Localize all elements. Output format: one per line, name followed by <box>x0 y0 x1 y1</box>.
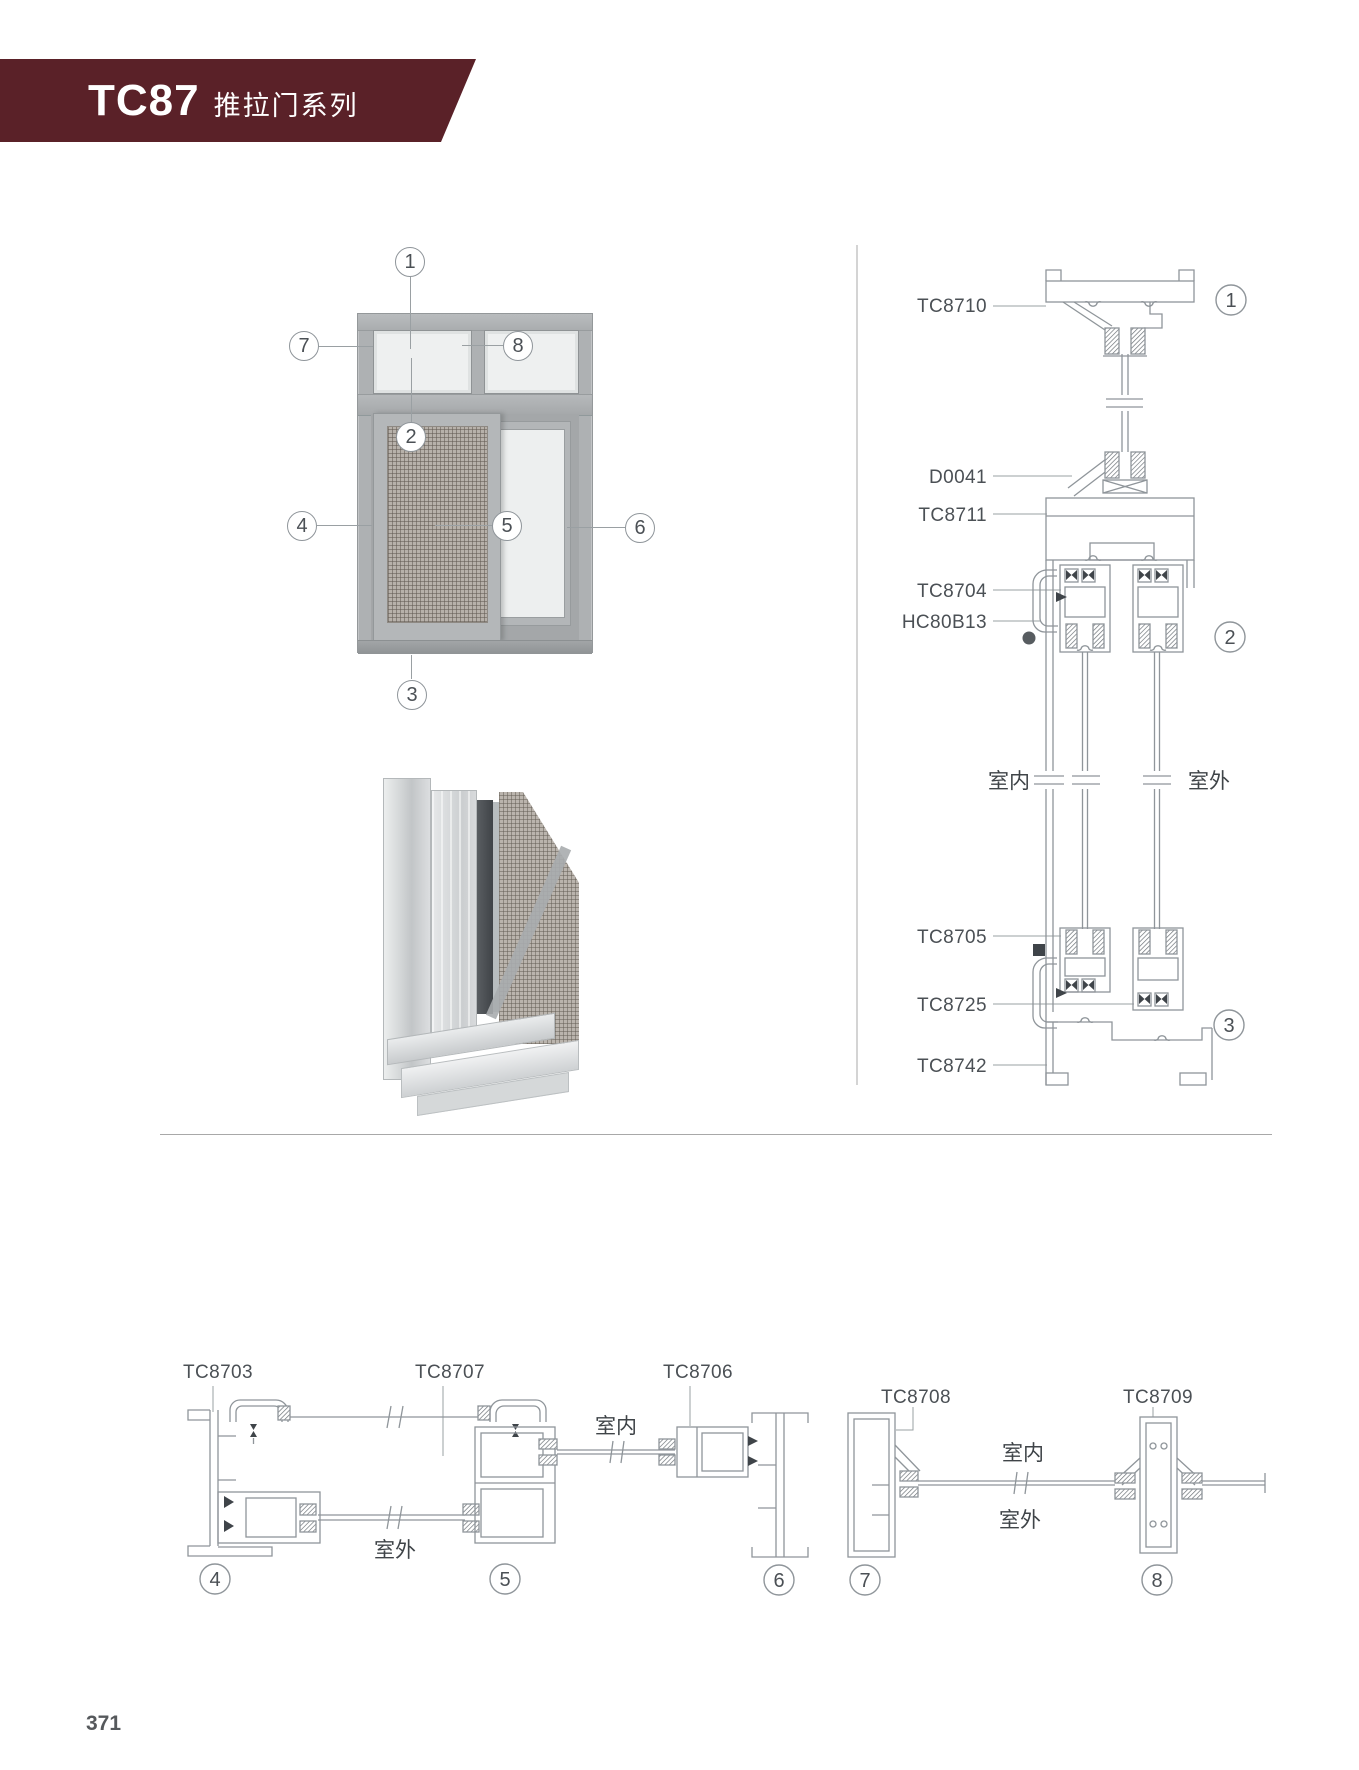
page-number: 371 <box>86 1712 121 1736</box>
section-callout-4: 4 <box>209 1569 220 1591</box>
top-sash-left <box>1060 565 1110 652</box>
section-callout-8: 8 <box>1151 1570 1162 1592</box>
vertical-section-drawing: 室内 室外 <box>850 240 1280 1100</box>
leader-callout-7 <box>319 346 373 347</box>
screen-top-guide <box>230 1400 546 1444</box>
render-glazing-channel <box>477 800 493 1014</box>
transom-glass-left <box>373 330 472 394</box>
leader-callout-8 <box>462 345 503 346</box>
callout-5: 5 <box>492 511 522 541</box>
horizontal-section-drawing: 室外 室内 <box>160 1340 1290 1610</box>
door-elevation-drawing <box>357 313 593 653</box>
catalog-page: TC87 推拉门系列 1 7 8 2 4 5 6 3 <box>0 0 1359 1770</box>
jamb-profile-TC8708 <box>848 1413 920 1557</box>
leader-callout-3 <box>411 655 412 679</box>
callout-4: 4 <box>287 511 317 541</box>
callout-3: 3 <box>397 680 427 710</box>
top-sash-right <box>1133 565 1183 652</box>
leader-callout-6 <box>567 527 625 528</box>
label-TC8711: TC8711 <box>918 505 987 526</box>
series-banner: TC87 推拉门系列 <box>0 59 476 142</box>
elevation-bottom-track <box>358 640 592 654</box>
vertical-section-labels: TC8710 D0041 TC8711 TC8704 HC80B13 TC870… <box>902 296 987 1077</box>
callout-6: 6 <box>625 513 655 543</box>
profile-3d-render <box>383 770 583 1110</box>
callout-2: 2 <box>396 422 426 452</box>
screen-sash-section <box>218 1492 320 1543</box>
outdoor-label-right: 室外 <box>999 1509 1041 1532</box>
hook-profile-TC8725 <box>1033 944 1067 1028</box>
bottom-sash-left <box>1060 928 1110 992</box>
section-callout-3: 3 <box>1223 1015 1234 1037</box>
vertical-section-callouts: 1 2 3 <box>1214 285 1246 1040</box>
jamb-profile-right <box>752 1413 808 1557</box>
sash-profile-TC8707 <box>475 1427 557 1543</box>
transom-glass-section <box>1106 354 1143 452</box>
bottom-section-callouts: 4 5 6 7 8 <box>200 1564 1172 1595</box>
section-callout-2: 2 <box>1224 627 1235 649</box>
label-TC8710: TC8710 <box>917 296 987 317</box>
label-TC8709: TC8709 <box>1123 1387 1193 1408</box>
bottom-section-labels: TC8703 TC8707 TC8706 TC8708 TC8709 <box>183 1362 1193 1408</box>
interlock-profile-TC8706 <box>677 1427 758 1477</box>
label-D0041: D0041 <box>929 467 987 488</box>
mid-glass-line <box>557 1439 675 1465</box>
label-TC8742: TC8742 <box>917 1056 987 1077</box>
section-callout-6: 6 <box>773 1570 784 1592</box>
outer-glass-line <box>318 1504 479 1532</box>
label-TC8705: TC8705 <box>917 927 987 948</box>
meeting-stile-TC8709 <box>1115 1417 1202 1553</box>
glass-pane-inner <box>1072 652 1100 929</box>
label-TC8708: TC8708 <box>881 1387 951 1408</box>
indoor-label-right: 室内 <box>1002 1442 1044 1465</box>
series-code: TC87 <box>88 59 200 142</box>
callout-7: 7 <box>289 331 319 361</box>
section-divider-horizontal <box>160 1134 1272 1135</box>
indoor-label-mid: 室内 <box>595 1415 637 1438</box>
leader-callout-4 <box>317 525 372 526</box>
label-TC8706: TC8706 <box>663 1362 733 1383</box>
leader-callout-1 <box>410 277 411 349</box>
render-sash-profile <box>431 790 477 1042</box>
label-HC80B13: HC80B13 <box>902 612 987 633</box>
section-callout-1: 1 <box>1225 290 1236 312</box>
outdoor-label-vertical: 室外 <box>1188 770 1230 793</box>
bottom-sash-right <box>1133 928 1183 1010</box>
head-frame-profile <box>1046 270 1194 356</box>
leader-callout-2 <box>411 358 412 422</box>
series-name: 推拉门系列 <box>214 84 359 123</box>
glass-pane-outer <box>1143 652 1171 929</box>
right-glass-line <box>918 1472 1265 1494</box>
section-callout-5: 5 <box>499 1569 510 1591</box>
render-glass-edge <box>493 802 499 1012</box>
callout-8: 8 <box>503 331 533 361</box>
label-TC8707: TC8707 <box>415 1362 485 1383</box>
section-callout-7: 7 <box>859 1570 870 1592</box>
callout-1: 1 <box>395 247 425 277</box>
bottom-track-profile <box>1046 1012 1212 1085</box>
outdoor-label-left: 室外 <box>374 1539 416 1562</box>
jamb-profile-TC8703 <box>188 1410 272 1556</box>
elevation-top-rail <box>358 314 592 331</box>
vertical-section-leaders <box>993 306 1134 1065</box>
glazing-clamp-D0041 <box>1068 452 1147 496</box>
label-TC8704: TC8704 <box>917 581 987 602</box>
label-TC8703: TC8703 <box>183 1362 253 1383</box>
label-TC8725: TC8725 <box>917 995 987 1016</box>
leader-callout-5 <box>435 525 492 526</box>
screen-leaf <box>373 413 501 641</box>
indoor-label-vertical: 室内 <box>988 770 1030 793</box>
